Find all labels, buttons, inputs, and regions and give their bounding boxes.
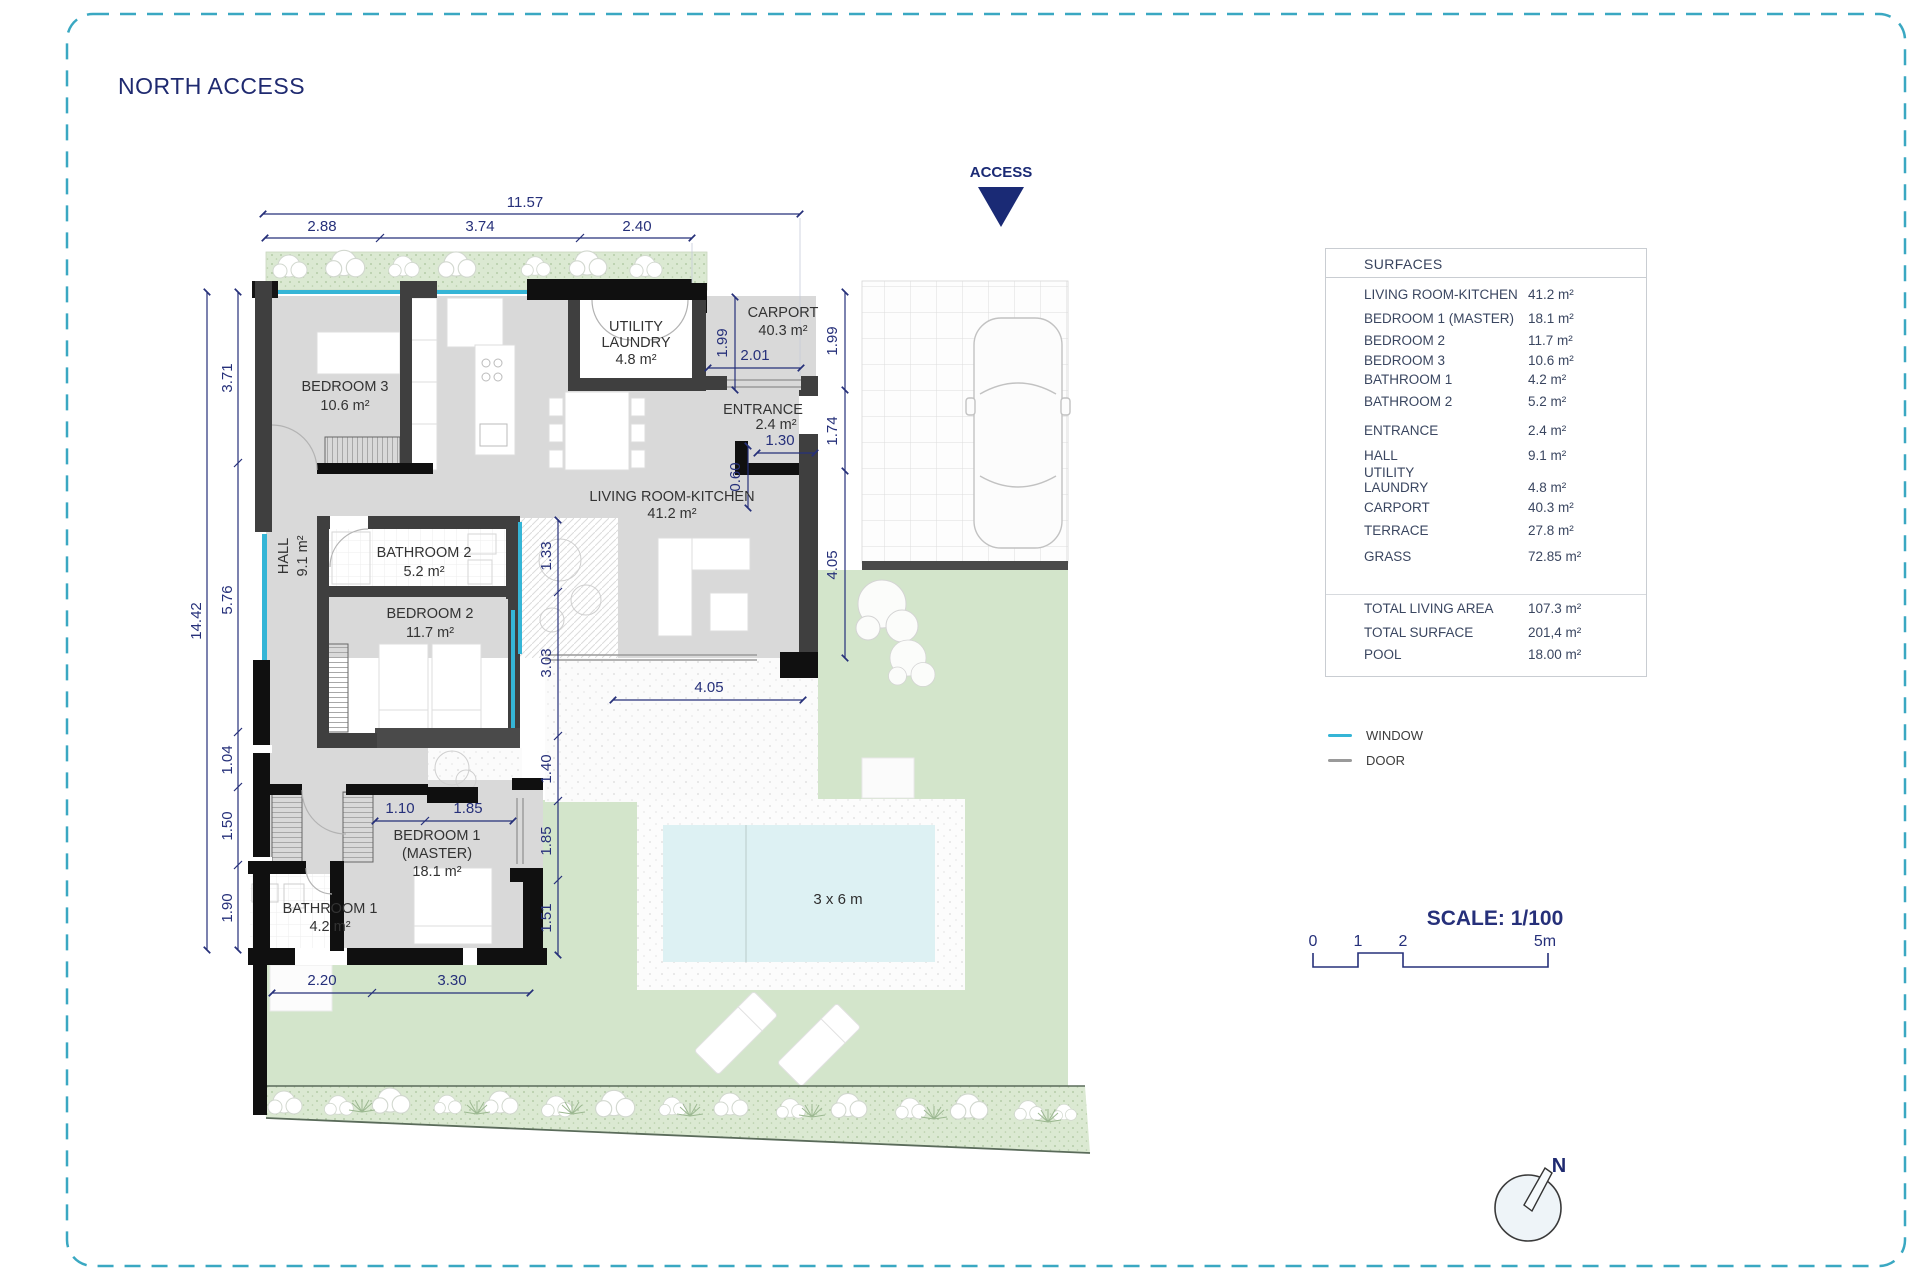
door-swatch-icon — [1328, 759, 1352, 762]
dim-label: 1.99 — [824, 326, 841, 355]
dim-label: 2.40 — [622, 218, 651, 235]
table-row: BATHROOM 25.2 m² — [1326, 394, 1646, 412]
kitchen-window — [437, 290, 527, 294]
north-compass: N — [1495, 1155, 1566, 1241]
table-row: BEDROOM 1 (MASTER)18.1 m² — [1326, 311, 1646, 329]
dim-label: 3.30 — [437, 972, 466, 989]
table-row: CARPORT40.3 m² — [1326, 500, 1646, 518]
dim-label: 1.30 — [765, 432, 794, 449]
dining-chair — [549, 424, 563, 442]
room-label: 10.6 m² — [320, 398, 369, 414]
legend-door: DOOR — [1328, 748, 1423, 773]
table-row: LIVING ROOM-KITCHEN41.2 m² — [1326, 287, 1646, 305]
plan-legend: WINDOW DOOR — [1328, 723, 1423, 773]
dim-label: 1.74 — [824, 416, 841, 445]
legend-door-label: DOOR — [1366, 753, 1405, 768]
room-label: BATHROOM 1 — [283, 901, 378, 917]
kitchen-tall-cabinets — [410, 298, 437, 470]
dim-label: 11.57 — [507, 194, 543, 211]
dim-label: 5.76 — [219, 585, 236, 614]
table-row: BEDROOM 310.6 m² — [1326, 353, 1646, 371]
room-label: 40.3 m² — [758, 323, 807, 339]
legend-window: WINDOW — [1328, 723, 1423, 748]
dim-label: 2.01 — [740, 347, 769, 364]
car-outline — [966, 318, 1070, 548]
table-row: BATHROOM 14.2 m² — [1326, 372, 1646, 390]
sofa — [658, 538, 692, 636]
room-label: BEDROOM 1 — [393, 828, 480, 844]
room-label: 4.2 m² — [309, 919, 350, 935]
patio-window — [518, 522, 522, 654]
room-label: CARPORT — [748, 305, 819, 321]
room-label: ENTRANCE — [723, 402, 803, 418]
legend-window-label: WINDOW — [1366, 728, 1423, 743]
dim-label: 1.85 — [538, 826, 555, 855]
room-label: LIVING ROOM-KITCHEN — [589, 489, 754, 505]
table-row: UTILITY LAUNDRY4.8 m² — [1326, 465, 1646, 497]
dining-chair — [549, 450, 563, 468]
table-divider — [1326, 594, 1646, 595]
table-row: ENTRANCE2.4 m² — [1326, 423, 1646, 441]
dim-label: 3.03 — [538, 648, 555, 677]
dim-label: 4.05 — [824, 550, 841, 579]
kitchen-counter — [447, 298, 503, 347]
scale-bar: SCALE: 1/100 0 1 2 5m — [1309, 907, 1564, 967]
dining-chair — [631, 398, 645, 416]
dim-label: 1.50 — [219, 811, 236, 840]
dim-label: 1.90 — [219, 893, 236, 922]
access-arrow-icon — [978, 187, 1024, 227]
bedroom2-bed — [379, 644, 428, 732]
room-label: (MASTER) — [402, 846, 472, 862]
dim-label: 14.42 — [188, 602, 205, 640]
room-label: 4.8 m² — [615, 352, 656, 368]
dim-label: 1.33 — [538, 541, 555, 570]
table-total-row: POOL18.00 m² — [1326, 647, 1646, 665]
table-total-row: TOTAL SURFACE201,4 m² — [1326, 625, 1646, 643]
room-label: 5.2 m² — [403, 564, 444, 580]
table-row: BEDROOM 211.7 m² — [1326, 333, 1646, 351]
room-label: UTILITY — [609, 319, 663, 335]
dining-chair — [549, 398, 563, 416]
room-label: BEDROOM 2 — [386, 606, 473, 622]
bedroom3-wardrobe — [325, 437, 400, 465]
page-title: NORTH ACCESS — [118, 73, 305, 99]
kitchen-island — [475, 345, 515, 455]
dim-label: 1.40 — [538, 754, 555, 783]
room-label: LAUNDRY — [601, 335, 670, 351]
scale-tick: 1 — [1354, 933, 1363, 950]
surfaces-header: SURFACES — [1364, 256, 1443, 272]
dim-label: 1.51 — [538, 903, 555, 932]
dim-label: 2.20 — [307, 972, 336, 989]
carport-area — [862, 281, 1070, 570]
room-label: HALL — [276, 538, 292, 574]
scale-tick: 2 — [1399, 933, 1408, 950]
dim-label: 3.74 — [465, 218, 494, 235]
room-label: 41.2 m² — [647, 506, 696, 522]
room-label: 11.7 m² — [406, 625, 454, 641]
access-marker: ACCESS — [970, 164, 1033, 227]
table-divider — [1326, 277, 1646, 278]
room-label: BATHROOM 2 — [377, 545, 472, 561]
bedroom3-window — [278, 290, 400, 294]
dim-label: 1.10 — [385, 800, 414, 817]
scale-tick: 0 — [1309, 933, 1318, 950]
dim-label: 1.85 — [453, 800, 482, 817]
surfaces-table: SURFACES LIVING ROOM-KITCHEN41.2 m² BEDR… — [1325, 248, 1647, 677]
bottom-planting-strip — [263, 1086, 1090, 1153]
dim-label: 3.71 — [219, 363, 236, 392]
dining-chair — [631, 424, 645, 442]
floorplan-page: NORTH ACCESS — [0, 0, 1920, 1280]
room-label: BEDROOM 3 — [301, 379, 388, 395]
pool-size-label: 3 x 6 m — [813, 891, 862, 908]
bedroom3-bed — [317, 332, 400, 374]
table-row: HALL9.1 m² — [1326, 448, 1646, 466]
bedroom2-bed — [432, 644, 481, 732]
dining-table — [565, 392, 629, 470]
dining-chair — [631, 450, 645, 468]
dim-label: 0.60 — [727, 462, 744, 491]
hall-wardrobe — [343, 792, 373, 862]
compass-north-label: N — [1552, 1155, 1566, 1177]
dim-label: 4.05 — [694, 679, 723, 696]
table-total-row: TOTAL LIVING AREA107.3 m² — [1326, 601, 1646, 619]
access-label: ACCESS — [970, 164, 1033, 181]
dim-label: 2.88 — [307, 218, 336, 235]
scale-tick: 5m — [1534, 933, 1556, 950]
table-row: GRASS72.85 m² — [1326, 549, 1646, 567]
hall-wardrobe — [272, 792, 302, 862]
carport-edge-wall — [862, 561, 1068, 570]
dim-label: 1.99 — [714, 328, 731, 357]
dim-label: 1.04 — [219, 745, 236, 774]
bedroom2-window — [511, 610, 515, 728]
room-label: 18.1 m² — [412, 864, 461, 880]
room-label: 9.1 m² — [295, 535, 311, 576]
coffee-table — [710, 593, 748, 631]
pool: 3 x 6 m — [663, 825, 935, 962]
table-row: TERRACE27.8 m² — [1326, 523, 1646, 541]
room-label: 2.4 m² — [755, 417, 796, 433]
scale-title: SCALE: 1/100 — [1427, 907, 1564, 930]
hall-window — [262, 534, 267, 660]
window-swatch-icon — [1328, 734, 1352, 737]
